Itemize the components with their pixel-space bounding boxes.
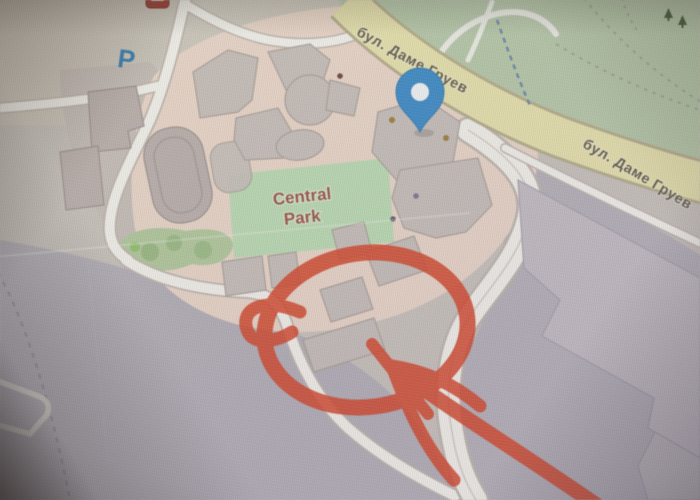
poi-dot[interactable]: [337, 73, 343, 79]
poi-dot[interactable]: [389, 117, 395, 123]
svg-text:Park: Park: [283, 206, 322, 229]
poi-marker-icon[interactable]: [146, 0, 169, 8]
poi-dot[interactable]: [413, 193, 419, 199]
bush: [166, 235, 182, 251]
building: [222, 256, 266, 296]
building: [60, 146, 104, 210]
bush: [194, 241, 212, 259]
poi-dot[interactable]: [443, 135, 449, 141]
map-canvas[interactable]: бул. Даме Груев бул. Даме Груев Central …: [0, 0, 700, 500]
map-photo: бул. Даме Груев бул. Даме Груев Central …: [0, 0, 700, 500]
bush: [141, 243, 159, 261]
